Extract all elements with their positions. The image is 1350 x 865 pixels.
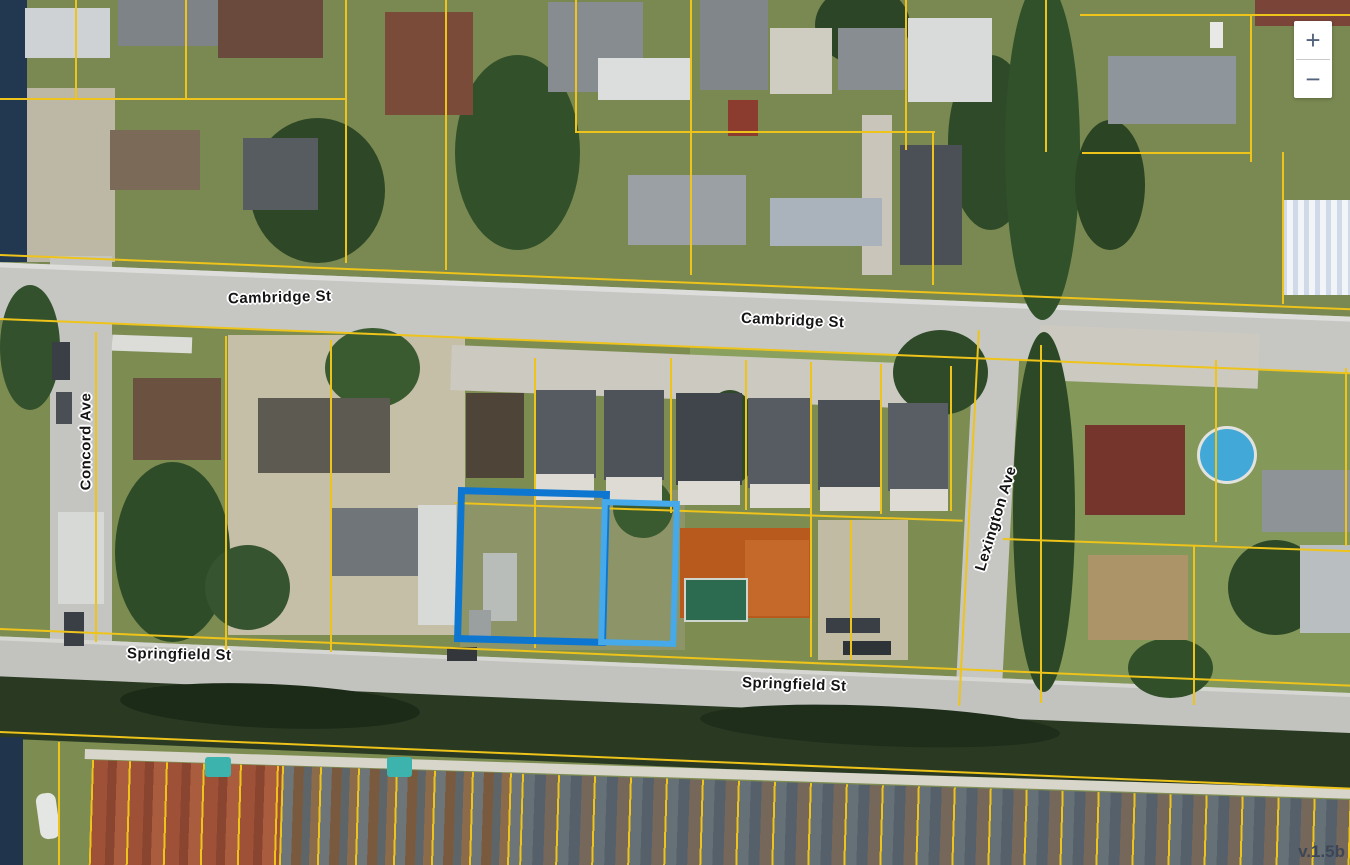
parcel-line	[575, 131, 935, 133]
parcel-line	[670, 358, 672, 513]
car	[1210, 22, 1223, 48]
parcel-line	[58, 742, 60, 865]
house-roof	[628, 175, 746, 245]
house-roof	[888, 403, 948, 491]
house-roof	[330, 508, 428, 576]
pool	[684, 578, 748, 622]
sandy-drive	[818, 520, 908, 660]
trailer	[598, 58, 690, 100]
car	[64, 612, 84, 646]
parcel-line	[690, 0, 692, 275]
car	[826, 618, 880, 633]
carport	[820, 487, 880, 511]
parcel-line	[75, 0, 77, 100]
tree-canopy	[325, 328, 420, 408]
highlighted-parcel-east[interactable]	[598, 499, 680, 647]
house-roof	[25, 8, 110, 58]
parcel-line	[1193, 545, 1195, 705]
zoom-in-button[interactable]: +	[1294, 21, 1332, 59]
parcel-line	[0, 98, 345, 100]
parcel-line	[225, 336, 227, 651]
house-roof	[385, 12, 473, 115]
water-canal-west	[0, 737, 23, 865]
house-roof	[258, 398, 390, 473]
parcel-line	[1045, 0, 1047, 152]
rv-trailer	[418, 505, 456, 625]
tree-canopy	[1128, 638, 1213, 698]
parcel-line	[1080, 14, 1350, 16]
parcel-line	[1250, 16, 1252, 162]
trailer	[908, 18, 992, 102]
street-label-springfield-east: Springfield St	[742, 674, 847, 695]
house-roof	[466, 393, 524, 478]
house-roof	[748, 398, 812, 488]
pool	[387, 757, 412, 777]
pool	[1197, 426, 1257, 484]
house-roof	[604, 390, 664, 480]
house-roof	[676, 393, 742, 485]
parcel-line	[1282, 152, 1284, 304]
parcel-line	[745, 360, 747, 510]
house-roof	[534, 390, 596, 478]
house-roof	[118, 0, 230, 46]
house-roof	[1262, 470, 1350, 532]
minus-icon: −	[1305, 64, 1320, 94]
parcel-line	[950, 366, 952, 511]
highlighted-parcel-west[interactable]	[454, 487, 610, 646]
zoom-out-button[interactable]: −	[1294, 60, 1332, 98]
driveway	[862, 115, 892, 275]
house-roof	[1085, 425, 1185, 515]
street-label-cambridge-west: Cambridge St	[228, 288, 332, 308]
car	[56, 392, 72, 424]
parcel-line	[1215, 360, 1217, 542]
tree-canopy	[1013, 332, 1075, 692]
carport	[890, 489, 948, 511]
canopy-roof	[1282, 200, 1350, 295]
parcel-line	[445, 0, 447, 270]
house-roof	[1088, 555, 1188, 640]
street-label-springfield-west: Springfield St	[127, 645, 232, 664]
parcel-line	[850, 520, 852, 660]
version-label: v.1.5b	[1298, 842, 1345, 862]
townhouse-row	[88, 760, 282, 865]
tree-canopy	[115, 462, 230, 642]
parcel-line	[810, 362, 812, 657]
house-roof	[133, 378, 221, 460]
concrete-pad	[770, 28, 832, 94]
parcel-line	[575, 0, 577, 133]
driveway-apron	[1038, 325, 1260, 389]
plus-icon: +	[1305, 25, 1320, 55]
house-roof	[770, 198, 882, 246]
townhouse-row	[278, 766, 521, 865]
water-canal-west	[0, 0, 27, 262]
pool	[205, 757, 231, 777]
parcel-line	[932, 133, 934, 285]
house-roof	[818, 400, 882, 490]
parcel-line	[345, 0, 347, 263]
house-roof	[218, 0, 323, 58]
house-roof	[838, 28, 906, 90]
parcel-line	[330, 340, 332, 652]
car	[112, 335, 193, 354]
house-roof	[700, 0, 768, 90]
parcel-line	[185, 0, 187, 100]
car	[52, 342, 70, 380]
zoom-control: + −	[1294, 21, 1332, 98]
parcel-line	[95, 332, 97, 642]
tree-canopy	[1075, 120, 1145, 250]
house-roof	[110, 130, 200, 190]
house-roof	[745, 540, 809, 616]
parcel-line	[1082, 152, 1252, 154]
carport	[750, 484, 810, 508]
house-roof	[243, 138, 318, 210]
carport	[678, 481, 740, 505]
warehouse-roof	[1108, 56, 1236, 124]
house-roof	[1300, 545, 1350, 633]
parcel-line	[1040, 345, 1042, 703]
map-canvas[interactable]: Cambridge St Cambridge St Springfield St…	[0, 0, 1350, 865]
street-label-concord-ave: Concord Ave	[78, 386, 95, 498]
parcel-line	[1345, 368, 1347, 546]
house-roof	[900, 145, 962, 265]
tree-canopy	[0, 285, 60, 410]
parcel-line	[905, 0, 907, 150]
rv-trailer	[58, 512, 104, 604]
tree-canopy	[205, 545, 290, 630]
parcel-line	[880, 364, 882, 514]
